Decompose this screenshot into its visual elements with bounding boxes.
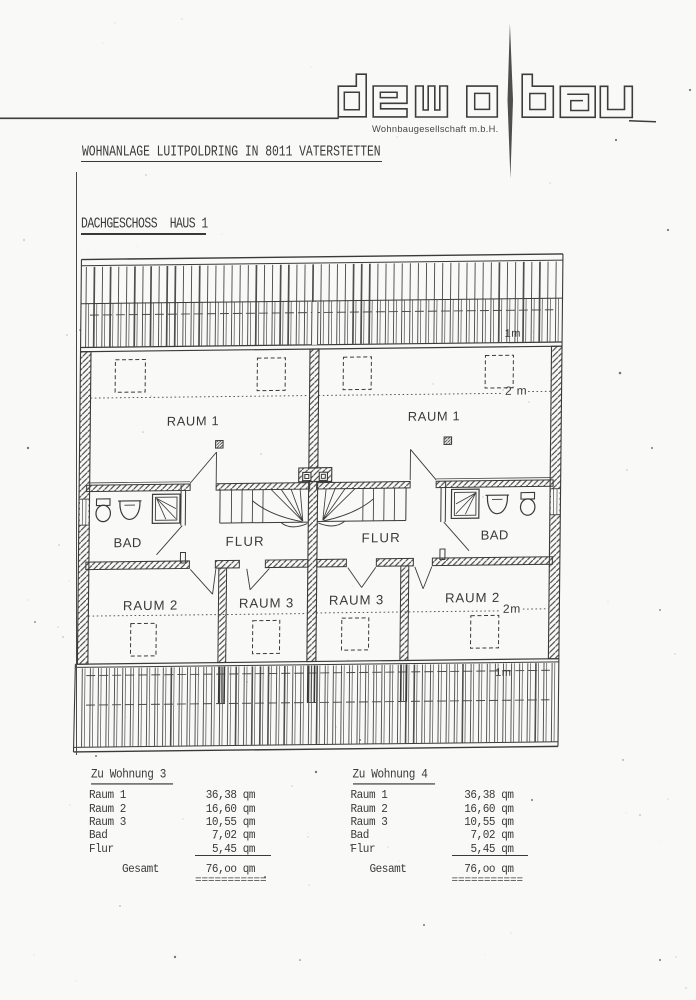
- svg-text:BAD: BAD: [114, 535, 142, 550]
- svg-text:FLUR: FLUR: [226, 534, 265, 549]
- svg-text:RAUM 2: RAUM 2: [445, 590, 500, 606]
- svg-text:RAUM 3: RAUM 3: [239, 595, 294, 611]
- svg-text:RAUM 2: RAUM 2: [123, 598, 178, 614]
- svg-text:2 m: 2 m: [505, 384, 528, 398]
- svg-text:RAUM 3: RAUM 3: [329, 592, 384, 608]
- svg-text:RAUM 1: RAUM 1: [408, 408, 461, 424]
- svg-text:BAD: BAD: [481, 527, 509, 542]
- svg-text:FLUR: FLUR: [362, 530, 401, 545]
- svg-text:1m: 1m: [505, 328, 521, 340]
- svg-text:1m: 1m: [495, 667, 511, 679]
- svg-text:2m: 2m: [503, 602, 521, 616]
- svg-text:RAUM 1: RAUM 1: [167, 413, 220, 429]
